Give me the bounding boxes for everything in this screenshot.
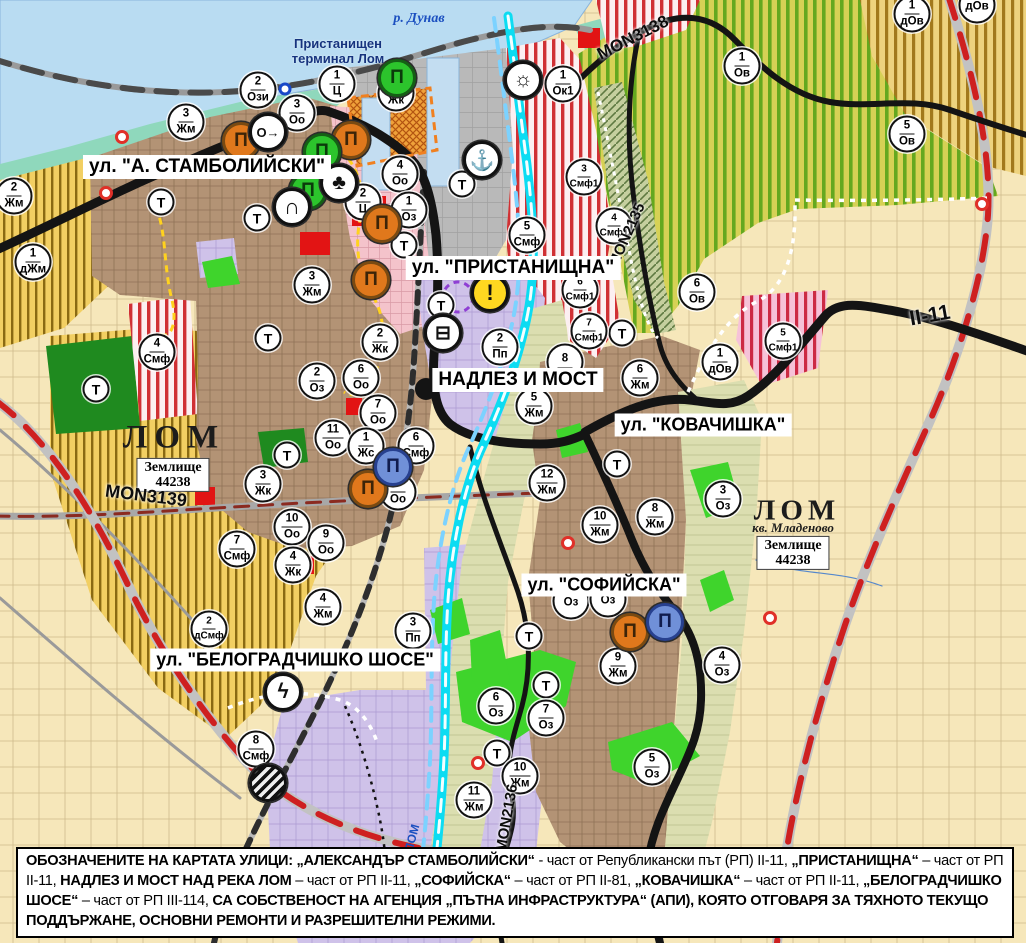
zone-marker-code: Пп [492,348,507,362]
zone-marker: 3Оз [705,481,742,518]
zone-marker-number: 1 [330,70,344,85]
zone-marker: 2дСмф [191,611,228,648]
zone-marker-number: 4 [286,551,300,566]
zone-marker-code: Жм [631,379,650,393]
zone-marker: 3Жм [168,104,205,141]
zone-marker-code: Смф1 [566,291,595,303]
tunnel-icon: ∩ [273,188,311,226]
zone-marker-number: 4 [393,160,407,175]
transport-marker: Т [148,189,175,216]
zone-marker: 12Жм [529,465,566,502]
zone-marker-number: 3 [256,470,270,485]
zone-marker-code: Смф [243,750,270,764]
transport-marker: Т [604,451,631,478]
monument-icon-blue: Π [374,448,412,486]
street-label-kovachishka: ул. "КОВАЧИШКА" [615,414,792,437]
zone-marker: 4Жк [275,547,312,584]
zone-marker-number: 3 [406,617,420,632]
zone-marker-code: Ов [734,67,750,81]
zone-marker: 2Пп [482,329,519,366]
zone-marker-code: Ц [333,85,341,99]
zone-marker: 7Оо [360,395,397,432]
monument-icon-green-glyph: Π [390,67,404,89]
zone-marker-number: 6 [409,432,423,447]
zone-marker-code: Жм [525,407,544,421]
river-danube-label: р. Дунав [393,11,444,27]
zone-marker-number: 11 [464,786,484,801]
zone-marker-code: Оо [390,493,406,507]
anchor-icon-glyph: ⚓ [470,148,495,173]
transport-marker: Т [533,672,560,699]
zone-marker: 11Оо [315,420,352,457]
club-icon-glyph: ♣ [332,171,346,195]
zone-marker: 1дЖм [15,244,52,281]
footer-text-segment: – част от РП II-11, [292,873,415,889]
zone-marker-number: 3 [716,485,730,500]
footer-text-segment: „КОВАЧИШКА“ [635,873,741,889]
zone-marker: 2Жк [362,324,399,361]
city-label-lom-west: ЛОМ [123,420,225,457]
zone-marker: 1дОв [702,344,739,381]
zone-marker-number: 2 [310,367,324,382]
zone-marker-code: Оо [284,528,300,542]
zone-marker-number: 5 [645,753,659,768]
zone-marker: 10Жм [582,507,619,544]
zone-marker: 7Смф [219,531,256,568]
zone-marker-code: Жм [465,801,484,815]
key-arrow-icon: O→ [249,113,287,151]
zone-marker-number: 1 [735,52,749,67]
zone-marker: 2Ози [240,72,277,109]
monument-icon-glyph: Π [344,129,358,151]
footer-text-segment: НАДЛЕЗ И МОСТ НАД РЕКА ЛОМ [60,873,291,889]
warning-icon-glyph: ! [486,280,493,306]
zone-marker-number: 2 [251,76,265,91]
zone-marker-number: 3 [305,271,319,286]
zone-marker-code: Смф1 [570,178,599,190]
zone-marker-code: Жм [177,123,196,137]
transport-marker: Т [83,376,110,403]
zone-marker-code: Оо [392,175,408,189]
zone-marker: 8Смф [238,731,275,768]
zone-marker-number: 6 [354,364,368,379]
zone-marker-code: Смф1 [769,342,798,354]
zone-marker-code: Оз [645,768,660,782]
zone-marker-number: 2 [202,617,216,630]
zone-marker-number: 7 [539,704,553,719]
zone-marker-number: 2 [356,188,370,203]
footer-text-segment: – част от РП II-11, [740,873,863,889]
zone-marker-number: 11 [323,424,343,439]
zone-marker-number: 9 [611,652,625,667]
zone-marker-code: Пп [405,632,420,646]
monument-icon-glyph: Π [375,213,389,235]
zone-marker-code: Оо [370,414,386,428]
zone-marker-code: Жм [591,526,610,540]
zone-marker-number: 1 [556,70,570,85]
red-ring-marker [561,536,575,550]
anchor-icon: ⚓ [463,141,501,179]
zone-marker: 2Оз [299,363,336,400]
monument-icon-blue-glyph: Π [658,611,672,633]
zone-marker-code: Смф1 [575,332,604,344]
zone-marker: 4Жм [305,589,342,626]
zone-marker-code: Ози [247,91,269,105]
zone-marker: 4Оз [704,647,741,684]
zone-marker-number: 8 [648,503,662,518]
zone-marker-number: 5 [900,120,914,135]
zone-marker: 6Оо [343,360,380,397]
zone-marker-code: Жм [303,286,322,300]
red-ring-marker [975,197,989,211]
monument-icon-glyph: Π [623,621,637,643]
zone-marker-code: Оз [402,211,417,225]
zone-marker: 5Смф [509,217,546,254]
bus-icon-glyph: ⊟ [435,322,451,345]
zone-marker-code: дЖм [20,263,46,277]
rail-crossing-icon [249,764,287,802]
zone-marker-number: 6 [690,278,704,293]
zone-marker-number: 4 [150,338,164,353]
kvartal-mladenovo-label: кв. Младеново [752,520,834,536]
power-icon: ϟ [264,673,302,711]
zone-marker: 7Смф1 [571,313,608,350]
red-ring-marker [99,186,113,200]
zone-marker-code: Оз [489,707,504,721]
zone-marker-number: 5 [776,329,790,342]
zone-marker-number: 9 [319,529,333,544]
zone-marker-number: 4 [715,651,729,666]
zone-marker: 11Жм [456,782,493,819]
zone-marker-number: 3 [179,108,193,123]
zone-marker: 4Смф [139,334,176,371]
zone-marker-code: Оо [318,544,334,558]
zone-marker: 5Оз [634,749,671,786]
zone-marker-number: 7 [230,535,244,550]
monument-icon-glyph: Π [361,478,375,500]
monument-icon: Π [363,205,401,243]
zone-marker-code: Оз [564,595,579,609]
port-terminal-label: Пристанищен терминал Лом [292,37,384,67]
bus-icon: ⊟ [424,314,462,352]
zone-marker-code: Смф [144,353,171,367]
zone-marker-number: 2 [373,328,387,343]
zone-marker-code: Ок1 [552,85,573,99]
zone-marker-code: Жм [538,484,557,498]
zone-marker: 1Ов [724,48,761,85]
street-label-belogradchishko-shose: ул. "БЕЛОГРАДЧИШКО ШОСЕ" [150,649,440,672]
port-terminal-icon-glyph: ☼ [513,68,532,92]
zone-marker: 4Оо [382,156,419,193]
zone-marker-code: Жм [609,667,628,681]
monument-icon-blue: Π [646,603,684,641]
footer-text-segment: „ПРИСТАНИЩНА“ [791,853,918,869]
zone-marker-code: Жм [5,197,24,211]
zone-marker: 3Жм [294,267,331,304]
zone-marker: 5Ов [889,116,926,153]
footer-text-segment: ОБОЗНАЧЕНИТЕ НА КАРТАТА УЛИЦИ: „АЛЕКСАНД… [26,853,535,869]
street-label-nadlez-i-most: НАДЛЕЗ И МОСТ [432,368,603,392]
zone-marker-code: Смф [224,550,251,564]
zone-marker: 9Жм [600,648,637,685]
zone-marker: 10Оо [274,509,311,546]
zone-marker-code: Смф [514,236,541,250]
zone-marker-number: 1 [359,432,373,447]
zone-marker: 1Ц [319,66,356,103]
zone-marker-code: дСмф [194,630,224,642]
street-label-stamboliyski: ул. "А. СТАМБОЛИЙСКИ" [83,155,331,179]
zone-marker-number: 8 [249,735,263,750]
zone-marker-code: Жс [358,447,375,461]
monument-icon: Π [611,613,649,651]
transport-marker: Т [516,623,543,650]
zone-marker-number: 3 [577,165,591,178]
zone-marker: 1Ок1 [545,66,582,103]
zone-marker-number: 6 [633,364,647,379]
footer-text-segment: - част от Републикански път (РП) II-11, [535,853,792,869]
zone-marker: 6Оз [478,688,515,725]
footer-text-segment: – част от РП III-114, [78,893,212,909]
zone-marker-number: 4 [607,214,621,227]
blue-ring-icon [279,83,292,96]
landplot-label-east: Землище 44238 [756,536,829,570]
map-stage: ул. "А. СТАМБОЛИЙСКИ"ул. "ПРИСТАНИЩНА"НА… [0,0,1026,943]
zone-marker: 9Оо [308,525,345,562]
red-ring-marker [471,756,485,770]
zone-marker: 8Жм [637,499,674,536]
zone-marker-code: Оз [539,719,554,733]
zone-marker-number: 1 [26,248,40,263]
zone-marker-number: 12 [537,469,558,484]
monument-icon: Π [352,261,390,299]
monument-icon-blue-glyph: Π [386,456,400,478]
zone-marker-code: Жк [255,485,271,499]
zone-marker-number: 7 [582,319,596,332]
zone-marker: 5Жм [516,388,553,425]
red-ring-marker [115,130,129,144]
zone-marker-number: 10 [590,511,611,526]
zone-marker-number: 7 [371,399,385,414]
zone-marker-number: 2 [493,333,507,348]
zone-marker-code: Оз [310,382,325,396]
zone-marker: 6Жм [622,360,659,397]
power-icon-glyph: ϟ [277,680,288,704]
tunnel-icon-glyph: ∩ [284,194,300,220]
transport-marker: Т [255,325,282,352]
zone-marker: 6Ов [679,274,716,311]
monument-icon-glyph: Π [234,130,248,152]
zone-marker-code: дОв [708,363,731,377]
footer-note: ОБОЗНАЧЕНИТЕ НА КАРТАТА УЛИЦИ: „АЛЕКСАНД… [16,847,1014,938]
street-label-pristanishtna: ул. "ПРИСТАНИЩНА" [406,256,621,280]
zone-marker-number: 4 [316,593,330,608]
zone-marker-code: дОв [965,0,988,13]
transport-marker: Т [244,205,271,232]
monument-icon-glyph: Π [364,269,378,291]
zone-marker-code: Оо [325,439,341,453]
footer-text-segment: – част от РП II-81, [511,873,635,889]
zone-marker-number: 1 [905,0,919,15]
zone-marker-number: 3 [290,99,304,114]
transport-marker: Т [609,320,636,347]
zone-marker: 5Смф1 [765,323,802,360]
zone-marker-number: 5 [520,221,534,236]
zone-marker-number: 10 [510,762,531,777]
zone-marker-number: 8 [558,354,572,369]
zone-marker-number: 2 [7,182,21,197]
street-label-sofiyska: ул. "СОФИЙСКА" [521,574,686,597]
zone-marker-code: Оз [715,666,730,680]
zone-marker: 3Смф1 [566,159,603,196]
zone-marker-code: Оз [716,500,731,514]
port-terminal-icon: ☼ [504,61,542,99]
zone-marker-number: 1 [713,348,727,363]
zone-marker: 3Пп [395,613,432,650]
zone-marker-code: Жк [285,566,301,580]
zone-marker: 3Жк [245,466,282,503]
zone-marker-code: дОв [900,15,923,29]
zone-marker-code: Ов [689,293,705,307]
zone-marker-code: Оо [353,379,369,393]
footer-text-segment: „СОФИЙСКА“ [414,873,511,889]
zone-marker-number: 5 [527,392,541,407]
zone-marker-code: Жм [314,608,333,622]
zone-marker-number: 6 [489,692,503,707]
zone-marker-code: Жк [372,343,388,357]
key-arrow-icon-glyph: O→ [256,125,279,140]
zone-marker-code: Жм [646,518,665,532]
zone-marker-code: Оо [289,114,305,128]
zone-marker-code: Ов [899,135,915,149]
zone-marker-number: 1 [402,196,416,211]
transport-marker: Т [274,442,301,469]
zone-marker-number: 10 [282,513,303,528]
zone-marker: 7Оз [528,700,565,737]
red-ring-marker [763,611,777,625]
